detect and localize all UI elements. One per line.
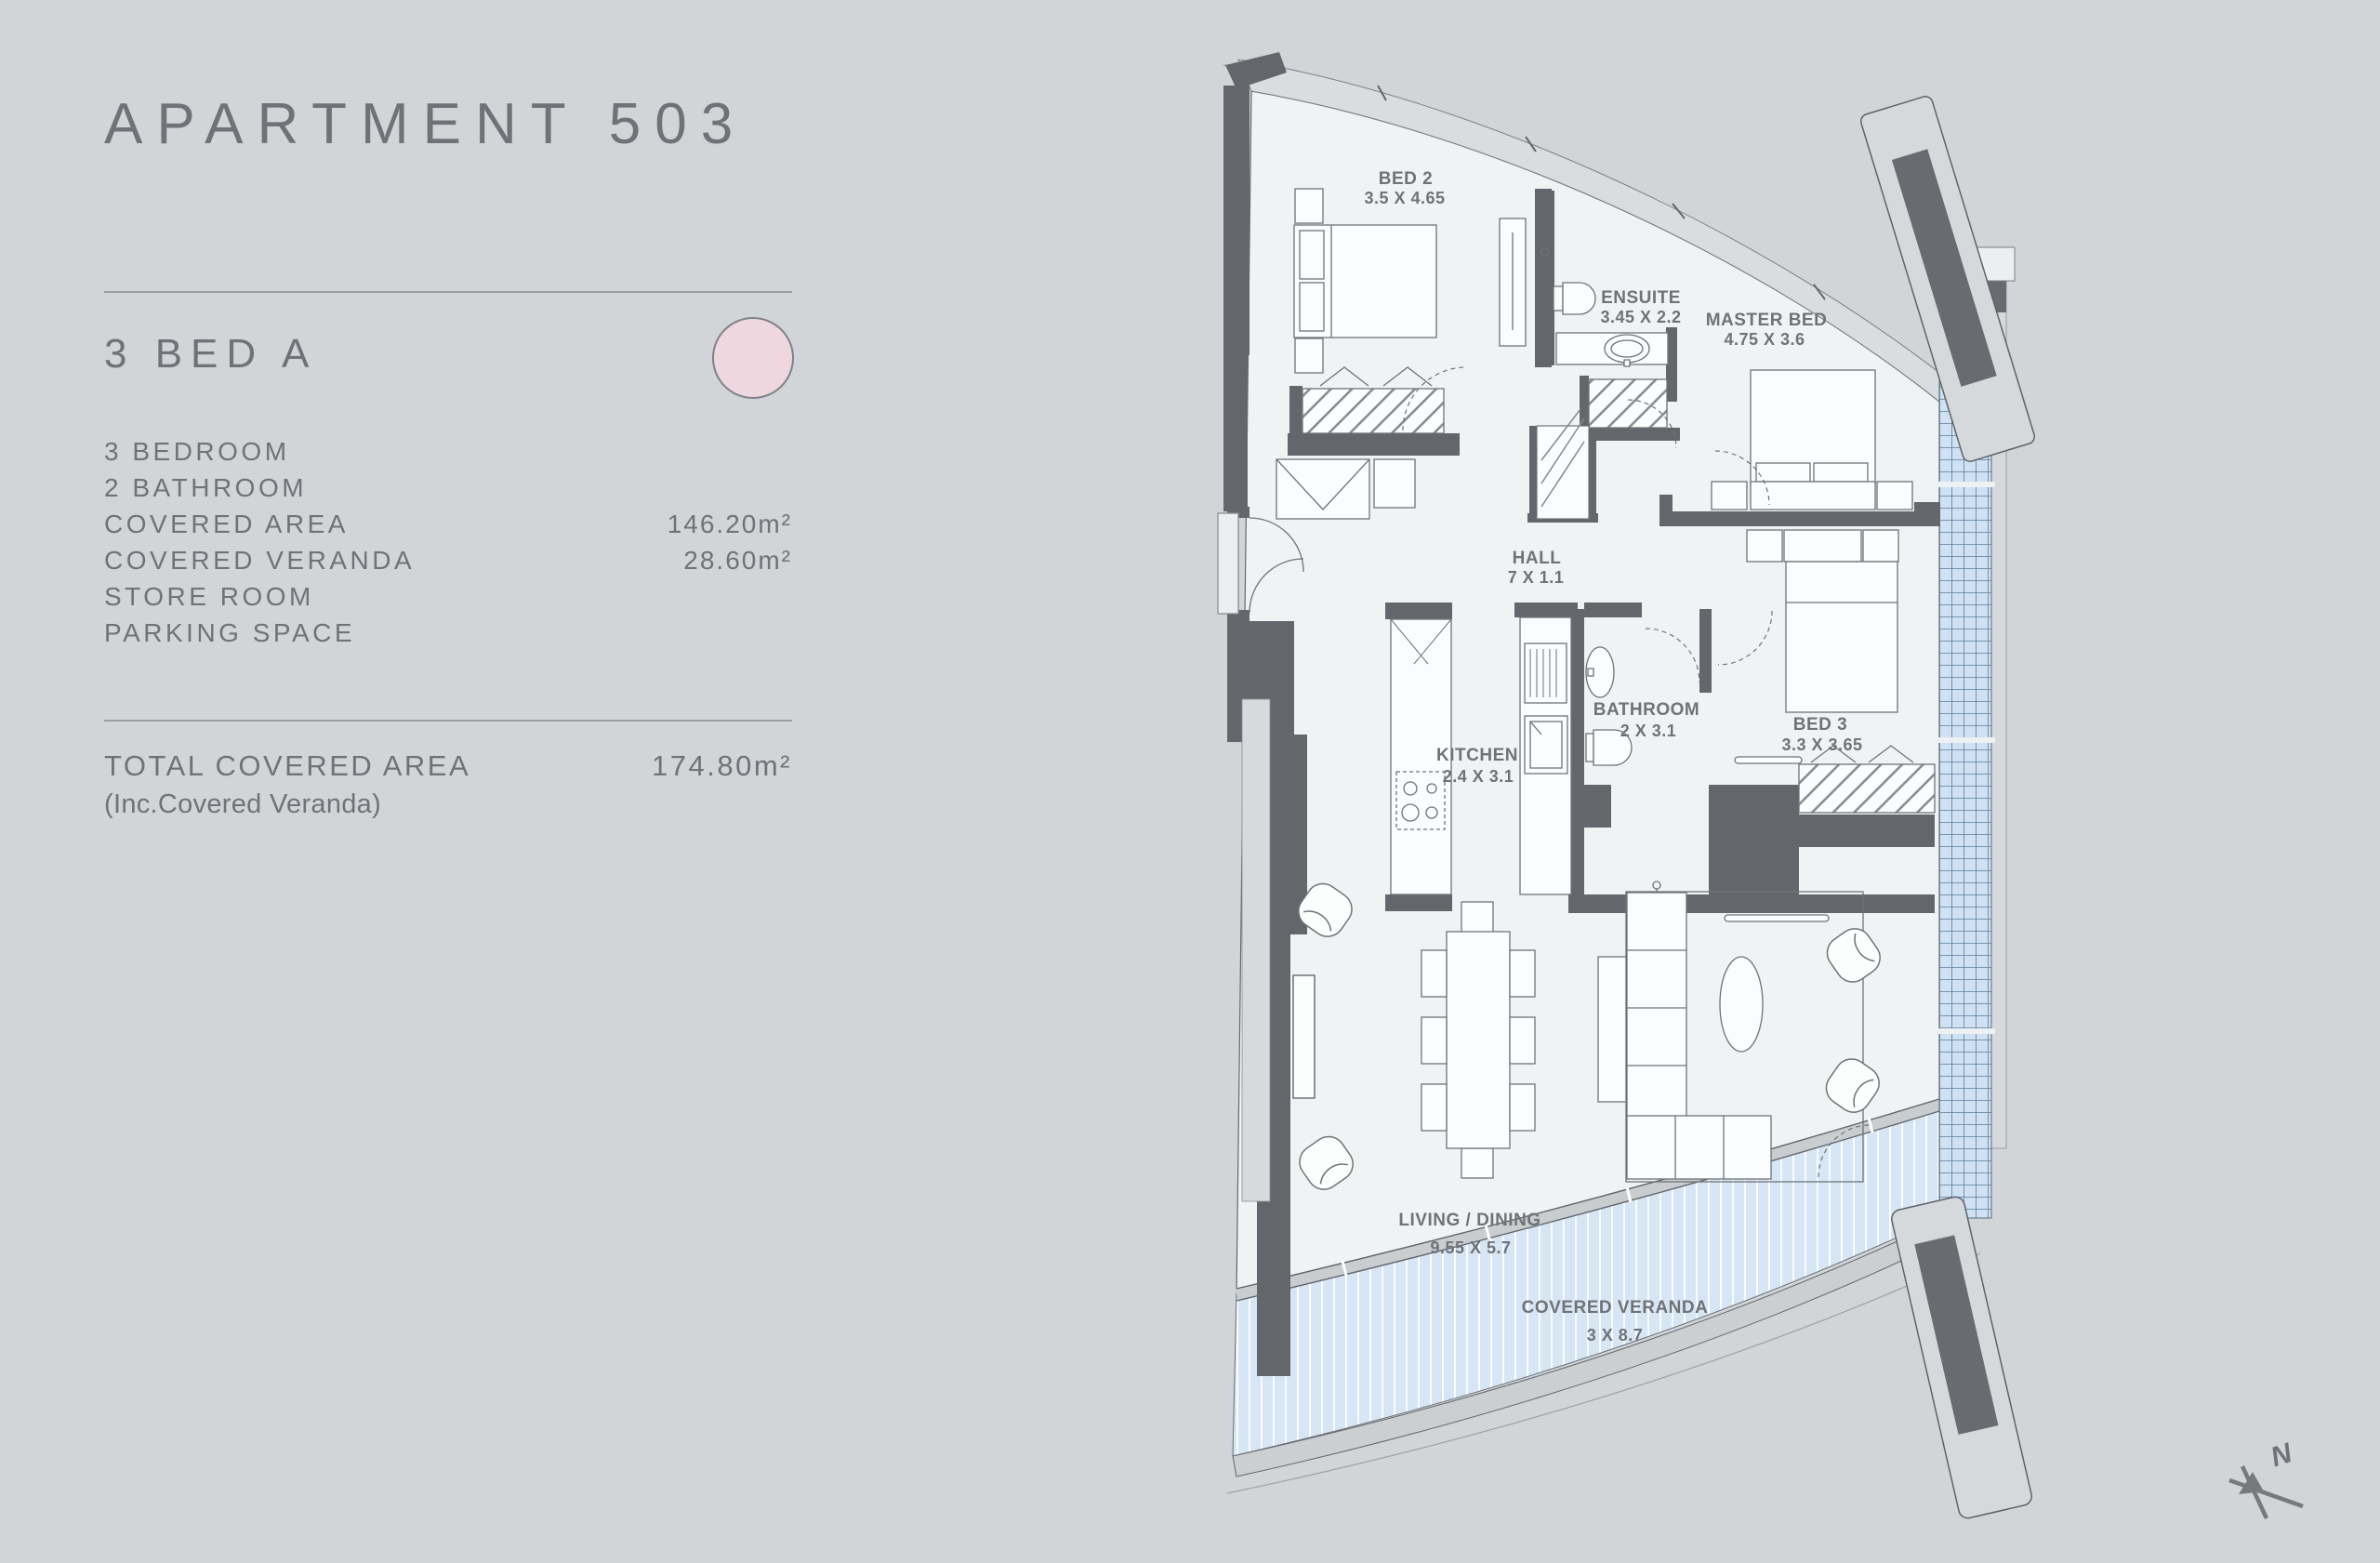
detail-label: PARKING SPACE <box>104 615 355 651</box>
room-label-bathroom: BATHROOM <box>1593 700 1699 720</box>
room-label-kitchen: KITCHEN <box>1436 746 1518 765</box>
room-dims-veranda: 3 X 8.7 <box>1587 1326 1644 1344</box>
divider-top <box>104 291 792 293</box>
room-label-ensuite: ENSUITE <box>1601 288 1681 308</box>
room-dims-bed3: 3.3 X 3.65 <box>1781 735 1862 754</box>
detail-label: 3 BEDROOM <box>104 433 290 470</box>
total-row: TOTAL COVERED AREA 174.80m² <box>104 749 792 783</box>
detail-row: COVERED VERANDA 28.60m² <box>104 542 792 578</box>
detail-row: PARKING SPACE <box>104 615 792 651</box>
unit-type-label: 3 BED A <box>104 331 317 378</box>
north-label: N <box>2267 1437 2296 1473</box>
detail-value: 146.20m² <box>668 506 792 542</box>
detail-label: STORE ROOM <box>104 578 314 615</box>
detail-list: 3 BEDROOM 2 BATHROOM COVERED AREA 146.20… <box>104 433 792 651</box>
room-label-veranda: COVERED VERANDA <box>1522 1298 1709 1318</box>
detail-label: COVERED AREA <box>104 506 349 542</box>
detail-row: 3 BEDROOM <box>104 433 792 470</box>
divider-bottom <box>104 720 792 722</box>
detail-row: STORE ROOM <box>104 578 792 615</box>
room-dims-bed2: 3.5 X 4.65 <box>1364 189 1445 207</box>
room-label-living-dining: LIVING / DINING <box>1398 1211 1540 1230</box>
detail-label: 2 BATHROOM <box>104 470 307 506</box>
room-dims-ensuite: 3.45 X 2.2 <box>1600 308 1681 326</box>
room-dims-hall: 7 X 1.1 <box>1508 568 1565 587</box>
total-value: 174.80m² <box>652 749 792 783</box>
room-dims-bathroom: 2 X 3.1 <box>1620 722 1677 740</box>
floor-plan: BED 2 3.5 X 4.65 ENSUITE 3.45 X 2.2 MAST… <box>1190 0 2380 1558</box>
room-dims-living-dining: 9.55 X 5.7 <box>1430 1238 1511 1257</box>
room-dims-kitchen: 2.4 X 3.1 <box>1443 767 1514 786</box>
detail-row: COVERED AREA 146.20m² <box>104 506 792 542</box>
total-note: (Inc.Covered Veranda) <box>104 789 381 820</box>
total-label: TOTAL COVERED AREA <box>104 749 470 783</box>
north-arrow-icon: N <box>2229 1437 2303 1518</box>
detail-row: 2 BATHROOM <box>104 470 792 506</box>
info-panel: APARTMENT 503 3 BED A 3 BEDROOM 2 BATHRO… <box>104 0 792 1558</box>
hall-closet <box>1537 409 1589 519</box>
room-label-master-bed: MASTER BED <box>1706 311 1828 330</box>
floor-plan-svg: BED 2 3.5 X 4.65 ENSUITE 3.45 X 2.2 MAST… <box>1190 0 2380 1558</box>
detail-label: COVERED VERANDA <box>104 542 415 578</box>
fin-bottom-right <box>1890 1195 2033 1519</box>
room-dims-master-bed: 4.75 X 3.6 <box>1724 330 1805 349</box>
detail-value: 28.60m² <box>683 542 792 578</box>
page-title: APARTMENT 503 <box>104 91 747 157</box>
room-label-bed3: BED 3 <box>1793 715 1847 735</box>
unit-color-dot <box>712 317 794 399</box>
room-label-hall: HALL <box>1513 549 1562 568</box>
room-label-bed2: BED 2 <box>1379 169 1433 189</box>
